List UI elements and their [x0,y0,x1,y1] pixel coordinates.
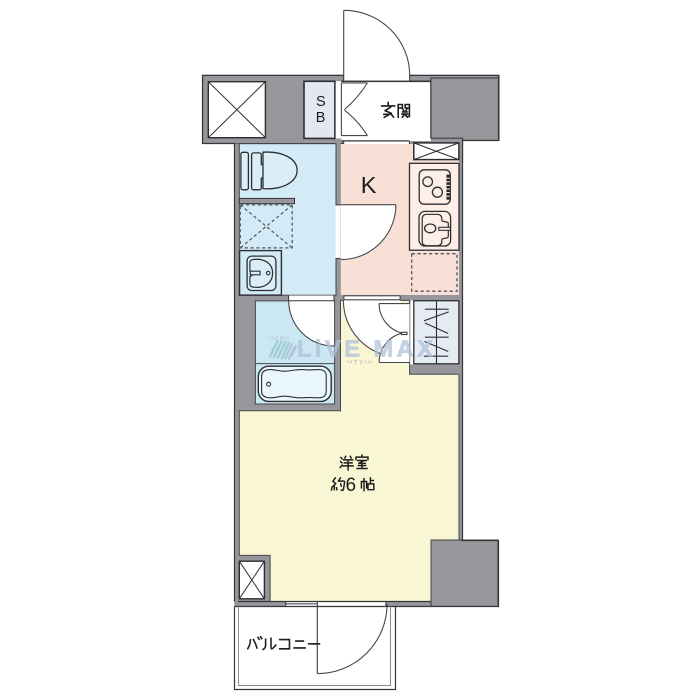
svg-text:K: K [361,172,377,198]
svg-text:LIVE MAX: LIVE MAX [269,336,289,341]
svg-text:LiVE MAX: LiVE MAX [297,336,436,362]
svg-text:S: S [316,94,326,110]
svg-text:B: B [316,110,326,126]
svg-text:6: 6 [346,475,357,496]
